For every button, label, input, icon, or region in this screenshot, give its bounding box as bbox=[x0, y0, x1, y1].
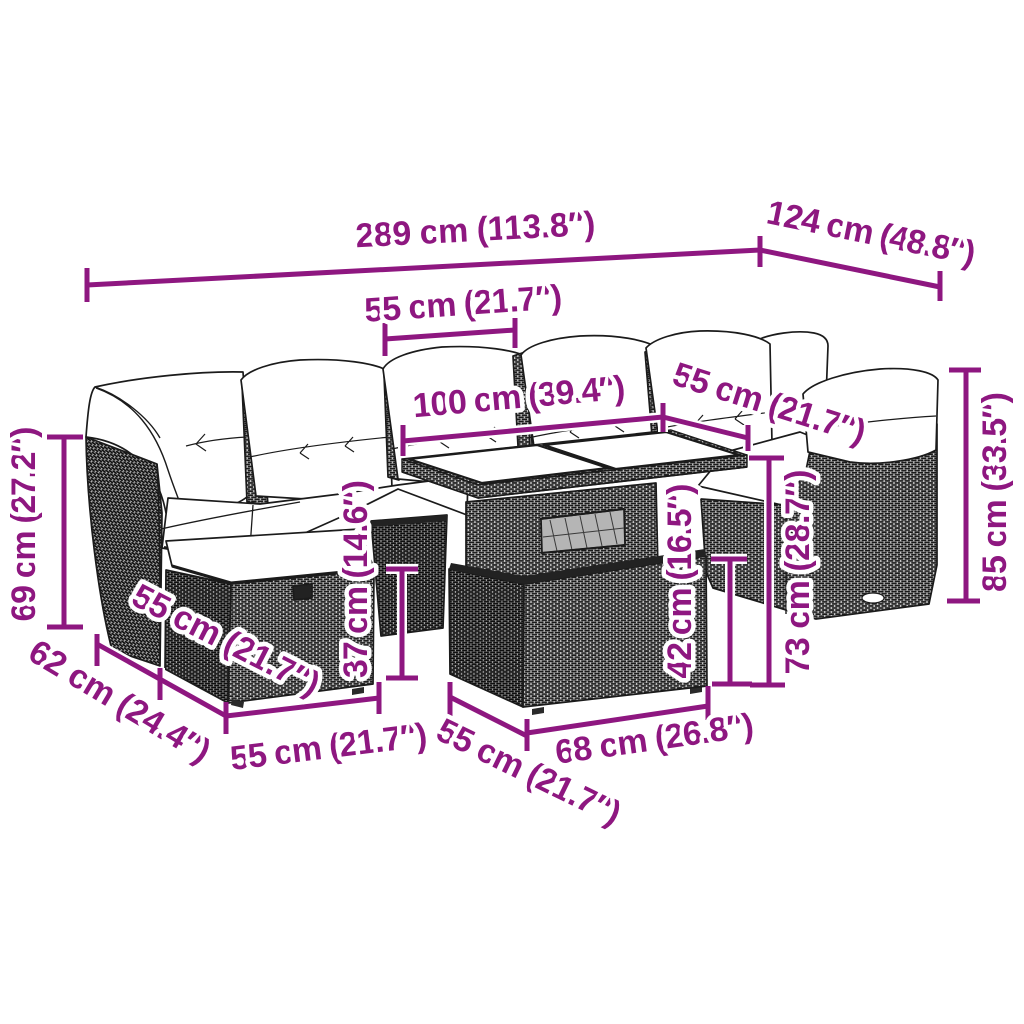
svg-text:69 cm (27.2″): 69 cm (27.2″) bbox=[5, 427, 43, 622]
svg-text:42 cm (16.5″): 42 cm (16.5″) bbox=[661, 484, 699, 679]
svg-text:85 cm (33.5″): 85 cm (33.5″) bbox=[976, 392, 1014, 592]
svg-text:37 cm (14.6″): 37 cm (14.6″) bbox=[337, 480, 375, 678]
svg-text:73 cm (28.7″): 73 cm (28.7″) bbox=[779, 470, 817, 675]
